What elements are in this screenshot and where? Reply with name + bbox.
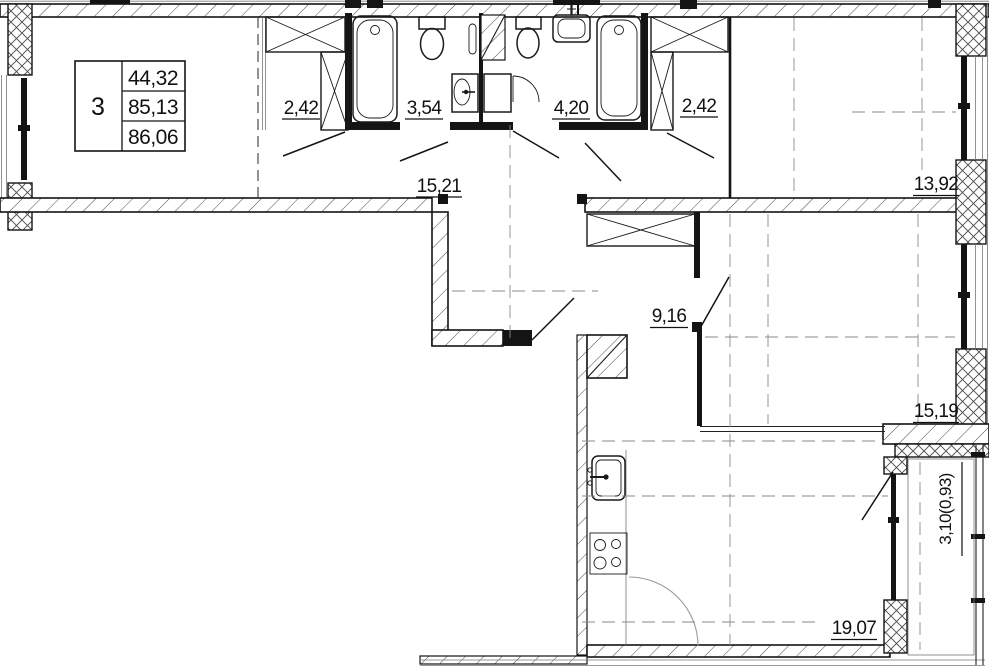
right-wall-pier bbox=[956, 160, 986, 244]
door-leaf-room-right bbox=[699, 277, 729, 330]
balcony-pier bbox=[884, 600, 907, 653]
right-wall-pier bbox=[956, 4, 986, 56]
balcony-window-frame bbox=[891, 523, 896, 600]
room-right-south-wall bbox=[883, 424, 989, 444]
top-wall-mark bbox=[928, 0, 941, 8]
floor-plan-drawing: 3 44,32 85,13 86,06 2,42 3,54 4,20 2,42 … bbox=[0, 0, 989, 669]
top-wall-mark bbox=[553, 0, 600, 5]
hall-south-wall-east bbox=[585, 198, 958, 212]
room-count: 3 bbox=[91, 93, 105, 121]
door-leaf-kitchen bbox=[532, 298, 574, 340]
balcony-pier bbox=[884, 457, 907, 474]
entry-door-arc bbox=[629, 577, 698, 646]
room-right-west-wall bbox=[697, 332, 702, 426]
corridor-west-wall bbox=[432, 212, 448, 345]
washbasin-symbol bbox=[452, 74, 478, 112]
bathtub-symbol bbox=[597, 16, 641, 120]
window-room-top-right bbox=[958, 56, 983, 160]
total-area-value: 86,06 bbox=[128, 126, 178, 149]
area-label-room-top-right: 13,92 bbox=[914, 174, 959, 195]
balcony-glazing bbox=[971, 445, 985, 665]
kitchen-south-wall bbox=[587, 645, 890, 657]
floor-plan: 3 44,32 85,13 86,06 2,42 3,54 4,20 2,42 … bbox=[0, 0, 989, 669]
washing-machine-symbol bbox=[484, 74, 539, 112]
door-leaf bbox=[585, 143, 621, 181]
top-wall-mark bbox=[680, 0, 697, 9]
stove-symbol bbox=[590, 533, 627, 574]
area-label-closet-left: 2,42 bbox=[284, 98, 319, 119]
kitchen-sink-symbol bbox=[588, 456, 625, 500]
living-area-value: 44,32 bbox=[128, 67, 178, 90]
door-leaf bbox=[667, 133, 714, 158]
vent-mark bbox=[367, 0, 383, 8]
toilet-symbol bbox=[419, 17, 445, 60]
balcony-door-frame bbox=[891, 474, 896, 520]
vent-mark bbox=[345, 0, 361, 8]
right-wall-pier bbox=[956, 349, 986, 428]
door-jamb bbox=[577, 194, 587, 204]
balcony-structure bbox=[862, 444, 989, 665]
bathtub-symbol bbox=[353, 16, 397, 122]
corridor-step-wall bbox=[432, 330, 503, 346]
window-room-right bbox=[958, 244, 983, 349]
area-label-bath-small: 3,54 bbox=[407, 98, 443, 119]
vent-shafts bbox=[481, 15, 627, 378]
door-leaf bbox=[400, 142, 448, 161]
hall-south-wall bbox=[0, 198, 432, 212]
top-wall-mark bbox=[90, 0, 130, 5]
door-leaf bbox=[283, 132, 345, 156]
wardrobe-corridor bbox=[587, 214, 695, 246]
area-label-corridor: 9,16 bbox=[652, 306, 687, 327]
kitchen-fixtures bbox=[588, 450, 698, 646]
kitchen-west-wall bbox=[577, 335, 587, 655]
apartment-info-table: 3 44,32 85,13 86,06 bbox=[75, 61, 185, 151]
area-label-room-right: 15,19 bbox=[914, 401, 959, 422]
toilet-symbol bbox=[516, 17, 541, 58]
area-label-bath-large: 4,20 bbox=[554, 98, 589, 119]
door-jamb bbox=[503, 330, 532, 346]
apartment-area-value: 85,13 bbox=[128, 96, 178, 119]
area-label-kitchen-living: 19,07 bbox=[832, 618, 877, 639]
bath-wall bbox=[641, 13, 648, 130]
towel-rail-symbol bbox=[469, 24, 476, 54]
area-label-closet-right: 2,42 bbox=[682, 96, 717, 117]
door-leaf bbox=[513, 131, 559, 158]
area-label-balcony: 3,10(0,93) bbox=[936, 473, 955, 545]
area-label-hall: 15,21 bbox=[417, 176, 462, 197]
left-wall-pier bbox=[8, 4, 32, 75]
